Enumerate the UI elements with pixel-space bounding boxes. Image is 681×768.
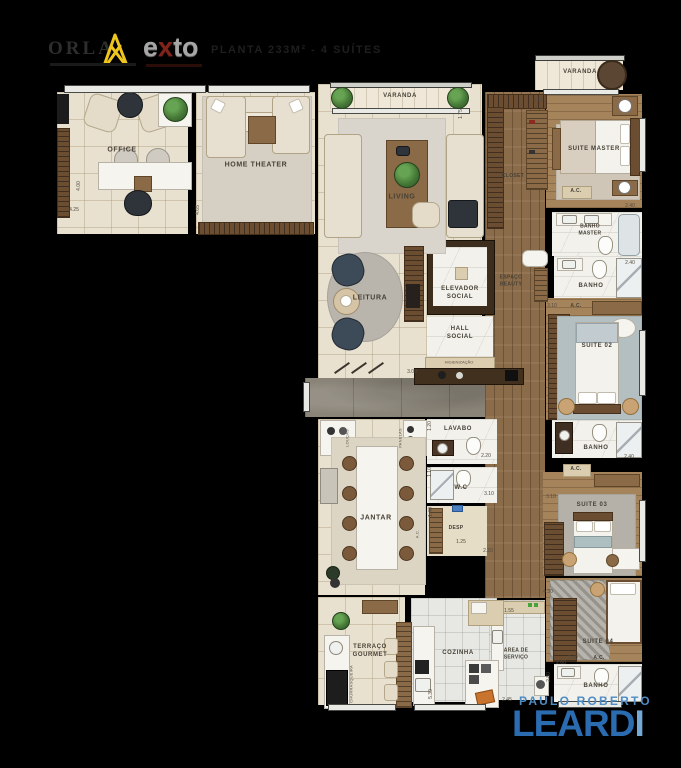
dim: 2.40 [625, 260, 635, 266]
label-ac: A.C. [570, 188, 581, 195]
beauty-cabinet [534, 268, 548, 302]
brand-tagline-bar [50, 63, 136, 66]
label-ac: A.C. [570, 466, 581, 473]
bar-counter [396, 622, 412, 708]
side-table [117, 92, 143, 118]
floorplan-page: { "header": { "brand": "ORLA", "exto_pre… [0, 0, 681, 768]
label-ac: A.C. [415, 530, 420, 539]
tipi-icon [99, 32, 133, 66]
dining-table [356, 446, 398, 570]
label-varanda-suite: VARANDA [563, 69, 597, 77]
hanging-chair [597, 60, 627, 90]
window [543, 89, 619, 95]
plant-pot [330, 578, 340, 588]
dim: 2.20 [483, 548, 493, 554]
gourmet-cabinet [362, 600, 398, 614]
label-suite-master: SUITE MASTER [568, 146, 620, 154]
watermark-leardi: LEARDI [512, 705, 644, 742]
exto-letter: e [143, 32, 158, 62]
media-console [198, 222, 314, 235]
label-wc: W.C [454, 485, 467, 493]
label-banho-master: BANHO MASTER [573, 224, 607, 237]
closet-accent [529, 120, 535, 124]
dining-chair [399, 456, 414, 471]
dim: 3.00 [407, 369, 417, 375]
dim: 4.00 [76, 181, 82, 191]
exto-logo: exto [143, 34, 199, 61]
console [592, 301, 642, 315]
dim: 3.10 [484, 491, 494, 497]
pillow [620, 146, 630, 166]
label-lavabo: LAVABO [444, 426, 472, 434]
dim: 2.40 [568, 655, 578, 661]
pouf [562, 552, 577, 567]
toilet [466, 437, 481, 455]
bar-stool [384, 661, 398, 678]
decor-bowl [327, 427, 335, 435]
sink [329, 641, 343, 655]
dim: 2.80 [546, 672, 552, 682]
side-table [448, 200, 478, 228]
dim: 4.30 [543, 589, 553, 595]
label-leitura: LEITURA [353, 293, 388, 302]
bar-stool [384, 684, 398, 701]
wardrobe [553, 598, 577, 662]
dining-chair [342, 516, 357, 531]
exto-tagline-bar [146, 64, 202, 67]
beauty-chair [522, 250, 548, 267]
label-office: OFFICE [107, 145, 136, 154]
dim: 2.20 [481, 453, 491, 459]
shower [616, 422, 642, 458]
toilet [592, 260, 607, 279]
island-fixture [469, 664, 479, 673]
dim: 1.10 [427, 467, 433, 477]
label-jantar: JANTAR [360, 513, 391, 522]
label-suite-04: SUITE 04 [583, 639, 614, 647]
pillow [594, 521, 611, 532]
island-fixture [469, 675, 479, 684]
sink [561, 668, 575, 677]
dim: 2.40 [624, 454, 634, 460]
window [639, 500, 646, 562]
fridge [471, 602, 487, 614]
label-closet: CLOSET [502, 173, 524, 180]
label-living: LIVING [389, 192, 416, 201]
dim: 4.85 [533, 97, 543, 103]
dining-chair [342, 456, 357, 471]
decor-bowl [407, 426, 414, 433]
dim: 1.40 [428, 507, 434, 517]
label-home-theater: HOME THEATER [225, 160, 288, 169]
closet-accent [529, 150, 535, 154]
lamp-table [558, 398, 575, 415]
label-desp: DESP [449, 525, 464, 532]
bench [552, 128, 561, 170]
pillow [610, 583, 636, 595]
window [328, 704, 396, 711]
plant [394, 162, 420, 188]
grill [326, 670, 348, 706]
plant [332, 612, 350, 630]
lamp [618, 99, 632, 113]
pouf [412, 202, 440, 228]
pillow [597, 392, 616, 404]
window [414, 704, 486, 711]
dim: 2.45 [502, 697, 512, 703]
label-banho-4: BANHO [584, 683, 609, 691]
island-fixture [481, 664, 491, 673]
dim: 1.75 [458, 109, 464, 119]
balcony-rail [330, 82, 472, 88]
label-higienizacao: HIGIENIZAÇÃO [445, 360, 474, 365]
dining-chair [399, 546, 414, 561]
cooktop [415, 660, 429, 674]
dining-chair [399, 486, 414, 501]
dim: 1.55 [504, 608, 514, 614]
window [639, 118, 646, 172]
label-ac: A.C. [593, 655, 604, 662]
label-banho-2: BANHO [579, 283, 604, 291]
plant [447, 87, 469, 109]
lamp-table [622, 398, 639, 415]
dim: 2.40 [625, 203, 635, 209]
label-ac: A.C. [570, 303, 581, 310]
laundry-item [528, 603, 532, 607]
headboard [573, 512, 613, 521]
label-area-servico: AREA DE SERVIÇO [497, 648, 535, 661]
plan-title: PLANTA 233M² - 4 SUÍTES [211, 44, 382, 56]
label-churrasqueira: CHURRASQUEIRA [349, 665, 354, 703]
window [64, 85, 206, 93]
pillow [576, 521, 593, 532]
washer-door [536, 680, 545, 689]
label-suite-03: SUITE 03 [577, 502, 608, 510]
wardrobe [487, 107, 504, 229]
label-cozinha: COZINHA [442, 650, 474, 658]
dining-chair [342, 546, 357, 561]
console [594, 474, 640, 487]
elevator-center [455, 267, 468, 280]
dim: 1.20 [427, 421, 433, 431]
label-varanda-living: VARANDA [383, 93, 417, 101]
sink [562, 260, 576, 269]
bathtub [618, 214, 640, 256]
shower [430, 470, 454, 500]
label-hall: HALL SOCIAL [444, 326, 476, 342]
table-decor [340, 295, 352, 307]
ottoman [248, 116, 276, 144]
office-sideboard [57, 128, 70, 218]
exto-letters: to [173, 32, 198, 62]
label-suite-02: SUITE 02 [582, 343, 613, 351]
pillow [620, 124, 630, 144]
sink [492, 630, 503, 644]
counter-item [438, 371, 446, 379]
label-loucas: LOUÇAS [345, 429, 350, 447]
tray [396, 146, 410, 156]
counter-box [505, 370, 518, 381]
headboard [573, 404, 621, 414]
bed-throw [574, 536, 612, 548]
office-chair [124, 190, 152, 216]
dim: 4.25 [69, 207, 79, 213]
bed-throw [576, 323, 618, 343]
service-door [303, 382, 310, 412]
window [639, 330, 646, 396]
lamp [618, 181, 631, 194]
dining-chair [342, 486, 357, 501]
dim: 1.25 [456, 539, 466, 545]
plant [331, 87, 353, 109]
laundry-item [534, 603, 538, 607]
sink [437, 443, 448, 454]
dim: 2.60 [556, 660, 566, 666]
wardrobe [544, 522, 564, 576]
exto-letter-x: x [158, 32, 173, 62]
pillow [578, 392, 597, 404]
label-espaco-beauty: ESPAÇO BEAUTY [493, 275, 529, 288]
desk-chair [606, 554, 619, 567]
dim: 3.10 [546, 494, 556, 500]
toilet [598, 236, 613, 255]
pouf [590, 582, 605, 597]
sink [559, 430, 570, 441]
label-panelas: PANELAS [398, 428, 403, 448]
toilet [592, 424, 607, 442]
window [208, 85, 310, 93]
plant [163, 97, 188, 122]
office-cabinet [57, 94, 69, 124]
label-elevador: ELEVADOR SOCIAL [437, 286, 483, 302]
ironing-item [452, 505, 463, 512]
dining-chair [399, 516, 414, 531]
window [332, 108, 470, 114]
dim: 5.30 [428, 689, 434, 699]
label-banho-3: BANHO [584, 445, 609, 453]
dim: 3.10 [547, 303, 557, 309]
leardi-accent: I [634, 703, 643, 744]
fireplace-inset [406, 284, 420, 308]
cabinet [320, 468, 338, 504]
leardi-main: LEARD [512, 703, 634, 744]
dim: 4.65 [195, 205, 201, 215]
counter-item [456, 372, 463, 379]
label-terraco: TERRAÇO GOURMET [348, 644, 392, 660]
sofa [324, 134, 362, 238]
